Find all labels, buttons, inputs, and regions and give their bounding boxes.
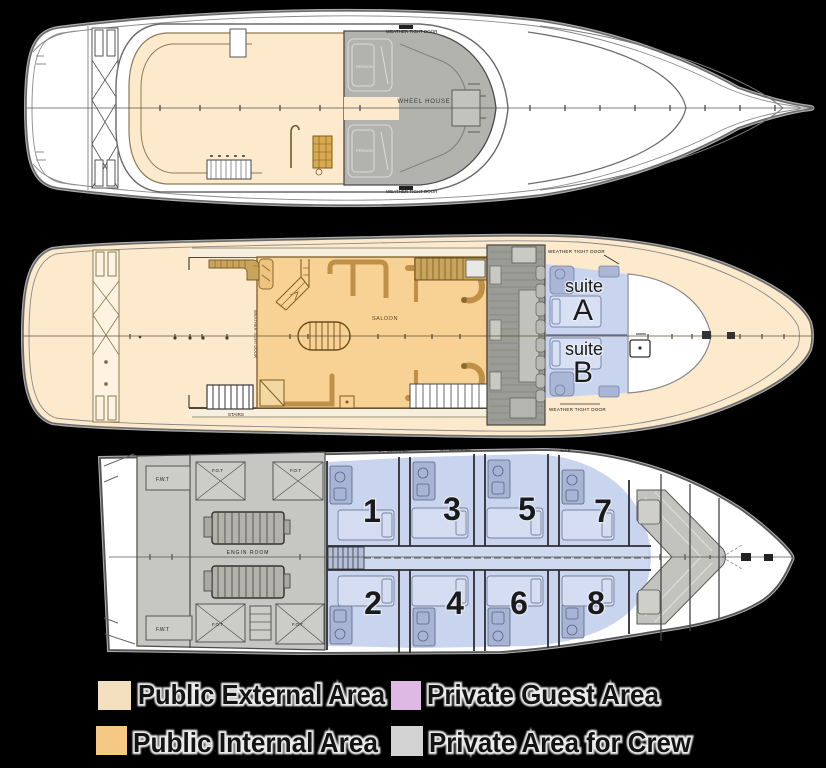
- svg-text:3: 3: [443, 491, 461, 527]
- svg-text:W.T.B: W.T.B: [560, 448, 571, 453]
- svg-text:STAIRS: STAIRS: [228, 412, 244, 417]
- svg-text:F.O.T: F.O.T: [292, 622, 303, 627]
- svg-text:WEATHER TIGHT DOOR: WEATHER TIGHT DOOR: [549, 407, 606, 412]
- svg-text:WHEEL HOUSE: WHEEL HOUSE: [398, 99, 451, 105]
- svg-text:Private Guest Area: Private Guest Area: [427, 679, 660, 710]
- svg-text:8: 8: [587, 585, 605, 621]
- svg-text:6: 6: [510, 585, 528, 621]
- svg-text:WEATHER TIGHT DOOR: WEATHER TIGHT DOOR: [386, 29, 438, 34]
- svg-text:suite: suite: [565, 276, 603, 296]
- svg-text:5: 5: [518, 491, 536, 527]
- svg-text:W.T. BULKHEAD: W.T. BULKHEAD: [378, 448, 409, 453]
- svg-text:Public Internal Area: Public Internal Area: [133, 727, 379, 758]
- svg-text:WEATHER TIGHT DOOR: WEATHER TIGHT DOOR: [253, 310, 258, 358]
- svg-text:PERSON: PERSON: [356, 64, 373, 69]
- svg-text:B: B: [573, 356, 593, 389]
- svg-text:WEATHER TIGHT DOOR: WEATHER TIGHT DOOR: [548, 249, 605, 254]
- svg-text:2: 2: [364, 585, 382, 621]
- svg-text:F.O.T: F.O.T: [212, 622, 223, 627]
- svg-text:F.O.T: F.O.T: [212, 468, 223, 473]
- svg-text:ENGIN ROOM: ENGIN ROOM: [227, 550, 270, 556]
- svg-text:W.T. BULKHEAD: W.T. BULKHEAD: [440, 447, 471, 452]
- svg-text:4: 4: [446, 585, 464, 621]
- svg-text:1: 1: [363, 493, 381, 529]
- svg-text:Private Area for Crew: Private Area for Crew: [429, 727, 692, 758]
- svg-text:A: A: [573, 294, 593, 327]
- svg-text:F.W.T: F.W.T: [156, 477, 169, 483]
- svg-text:F.O.T: F.O.T: [290, 468, 301, 473]
- svg-text:PERSON: PERSON: [356, 148, 373, 153]
- svg-text:F.W.T: F.W.T: [156, 627, 169, 633]
- svg-text:7: 7: [594, 493, 612, 529]
- svg-text:Public External Area: Public External Area: [138, 679, 386, 710]
- svg-text:SALOON: SALOON: [372, 316, 398, 322]
